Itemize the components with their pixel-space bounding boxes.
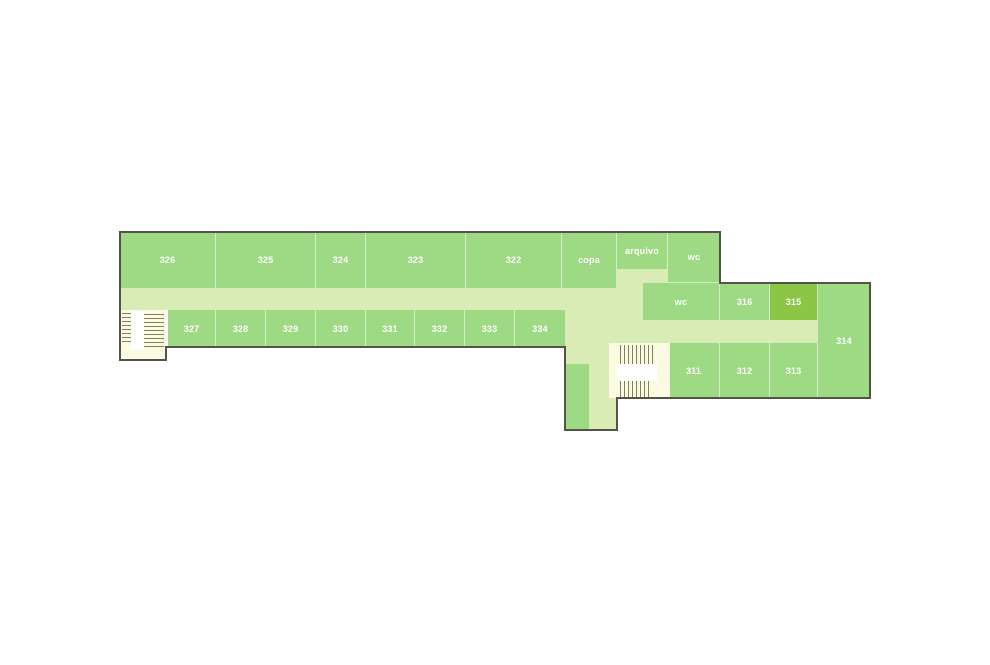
room-label: 316 — [737, 297, 753, 307]
room-334[interactable]: 334 — [515, 310, 565, 347]
corridor-main — [120, 288, 565, 310]
stair-landing — [617, 364, 657, 381]
room-label: 328 — [233, 324, 249, 334]
corridor-right — [643, 320, 818, 343]
room-333[interactable]: 333 — [465, 310, 515, 347]
room-label: 332 — [432, 324, 448, 334]
stair-treads-bottom — [620, 381, 649, 397]
room-323[interactable]: 323 — [366, 232, 466, 288]
room-328[interactable]: 328 — [216, 310, 266, 347]
room-label: 334 — [532, 324, 548, 334]
room-332[interactable]: 332 — [415, 310, 465, 347]
room-label: copa — [578, 255, 600, 265]
room-label: 313 — [786, 366, 802, 376]
room-label: wc — [675, 297, 687, 307]
room-label: 322 — [506, 255, 522, 265]
room-arquivo[interactable]: arquivo — [617, 232, 668, 269]
room-326[interactable]: 326 — [120, 232, 216, 288]
room-327[interactable]: 327 — [168, 310, 216, 347]
room-wc-top[interactable]: wc — [668, 232, 720, 283]
corridor-beside-wc — [617, 283, 643, 343]
room-label: 327 — [184, 324, 200, 334]
room-label: 330 — [333, 324, 349, 334]
room-copa[interactable]: copa — [562, 232, 617, 288]
room-315[interactable]: 315 — [770, 283, 818, 320]
room-wc-mid[interactable]: wc — [643, 283, 720, 320]
floor-plan: 326 325 324 323 322 copa arquivo wc 327 … — [0, 0, 990, 665]
room-label: 315 — [786, 297, 802, 307]
room-316[interactable]: 316 — [720, 283, 770, 320]
room-322[interactable]: 322 — [466, 232, 562, 288]
room-331[interactable]: 331 — [366, 310, 415, 347]
corridor-under-arquivo — [617, 269, 668, 283]
stairwell-center — [609, 343, 670, 398]
room-label: 324 — [333, 255, 349, 265]
room-label: arquivo — [625, 246, 659, 256]
room-325[interactable]: 325 — [216, 232, 316, 288]
stairwell-left — [120, 310, 166, 360]
room-label: 314 — [836, 336, 852, 346]
stair-treads-right — [144, 314, 164, 347]
room-329[interactable]: 329 — [266, 310, 316, 347]
room-label: 312 — [737, 366, 753, 376]
room-311[interactable]: 311 — [668, 343, 720, 398]
room-313[interactable]: 313 — [770, 343, 818, 398]
room-314[interactable]: 314 — [818, 283, 870, 398]
room-label: 329 — [283, 324, 299, 334]
room-label: 323 — [408, 255, 424, 265]
room-label: 331 — [382, 324, 398, 334]
room-label: wc — [688, 252, 700, 262]
room-label: 333 — [482, 324, 498, 334]
stair-treads-top — [620, 345, 654, 365]
room-label: 311 — [686, 366, 701, 376]
room-330[interactable]: 330 — [316, 310, 366, 347]
room-label: 326 — [160, 255, 176, 265]
stair-landing — [131, 311, 144, 349]
room-312[interactable]: 312 — [720, 343, 770, 398]
room-324[interactable]: 324 — [316, 232, 366, 288]
elevator-shaft — [566, 364, 589, 430]
room-label: 325 — [258, 255, 274, 265]
